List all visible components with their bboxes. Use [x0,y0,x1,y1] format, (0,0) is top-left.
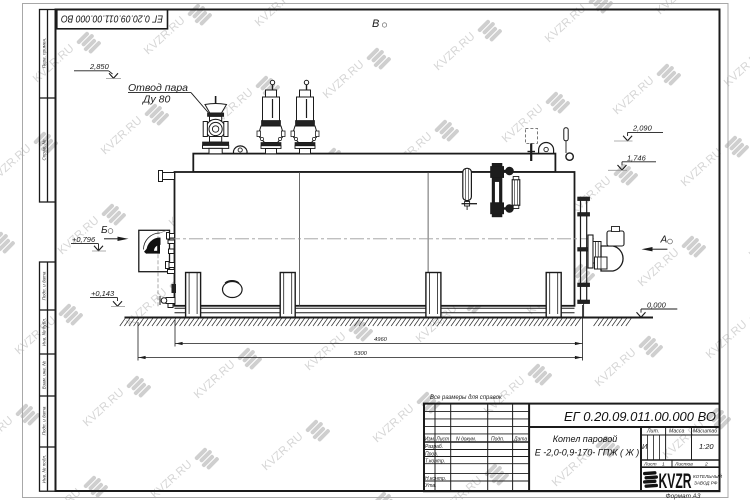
svg-text:Лит.: Лит. [646,429,659,435]
svg-text:Подп. и дата: Подп. и дата [42,406,47,435]
svg-text:2,090: 2,090 [632,124,653,133]
svg-text:ЗАВОД РФ: ЗАВОД РФ [694,481,718,486]
svg-text:0,000: 0,000 [647,300,667,309]
svg-text:ЕГ 0.20.09.011.00.000 ВО: ЕГ 0.20.09.011.00.000 ВО [61,12,163,24]
svg-text:4960: 4960 [374,337,388,343]
svg-text:1: 1 [662,462,665,468]
svg-text:В: В [372,18,379,30]
svg-text:Лист: Лист [435,436,449,442]
svg-text:Масса: Масса [669,429,684,435]
svg-text:Подп.: Подп. [491,436,504,442]
svg-text:Подп. и дата: Подп. и дата [42,271,47,300]
svg-text:Е -2,0-0,9-170- ГПЖ ( Ж ): Е -2,0-0,9-170- ГПЖ ( Ж ) [535,448,639,458]
svg-text:Изм.: Изм. [425,436,436,442]
svg-text:2: 2 [704,462,708,468]
svg-text:Масштаб: Масштаб [693,429,718,435]
svg-text:Инв. № подл.: Инв. № подл. [42,455,47,484]
svg-text:Т.контр.: Т.контр. [425,459,445,465]
svg-text:ЕГ 0.20.09.011.00.000 ВО: ЕГ 0.20.09.011.00.000 ВО [564,409,716,424]
svg-text:Перв. примен.: Перв. примен. [42,38,47,69]
svg-text:Все размеры для справок: Все размеры для справок [430,395,503,401]
svg-text:Взам. инв. №: Взам. инв. № [42,361,47,389]
svg-text:Инв. № дубл.: Инв. № дубл. [42,318,47,346]
svg-text:1,746: 1,746 [627,154,647,163]
svg-text:5300: 5300 [354,351,368,357]
svg-text:Разраб.: Разраб. [425,444,443,450]
svg-text:+0,143: +0,143 [91,289,115,298]
svg-text:Пров.: Пров. [425,451,438,457]
svg-text:N докум.: N докум. [456,436,476,442]
svg-text:Лист: Лист [643,462,657,468]
svg-text:Дата: Дата [513,436,527,442]
svg-text:Котел паровой: Котел паровой [553,434,618,444]
svg-text:А: А [660,234,668,245]
svg-text:1:20: 1:20 [699,442,714,451]
svg-text:KVZR: KVZR [659,470,692,493]
svg-text:Б: Б [101,225,108,236]
svg-text:Справ. №: Справ. № [42,140,47,161]
svg-text:Утв.: Утв. [425,483,436,489]
svg-text:Формат А3: Формат А3 [666,493,701,500]
svg-text:КОТЕЛЬНЫЙ: КОТЕЛЬНЫЙ [693,472,723,479]
svg-text:Листов: Листов [674,462,693,468]
svg-text:И: И [642,442,648,451]
svg-text:Ду 80: Ду 80 [142,94,171,106]
svg-text:Н.контр.: Н.контр. [425,476,446,482]
svg-text:+0,796: +0,796 [72,235,96,244]
svg-text:2,850: 2,850 [89,62,110,71]
